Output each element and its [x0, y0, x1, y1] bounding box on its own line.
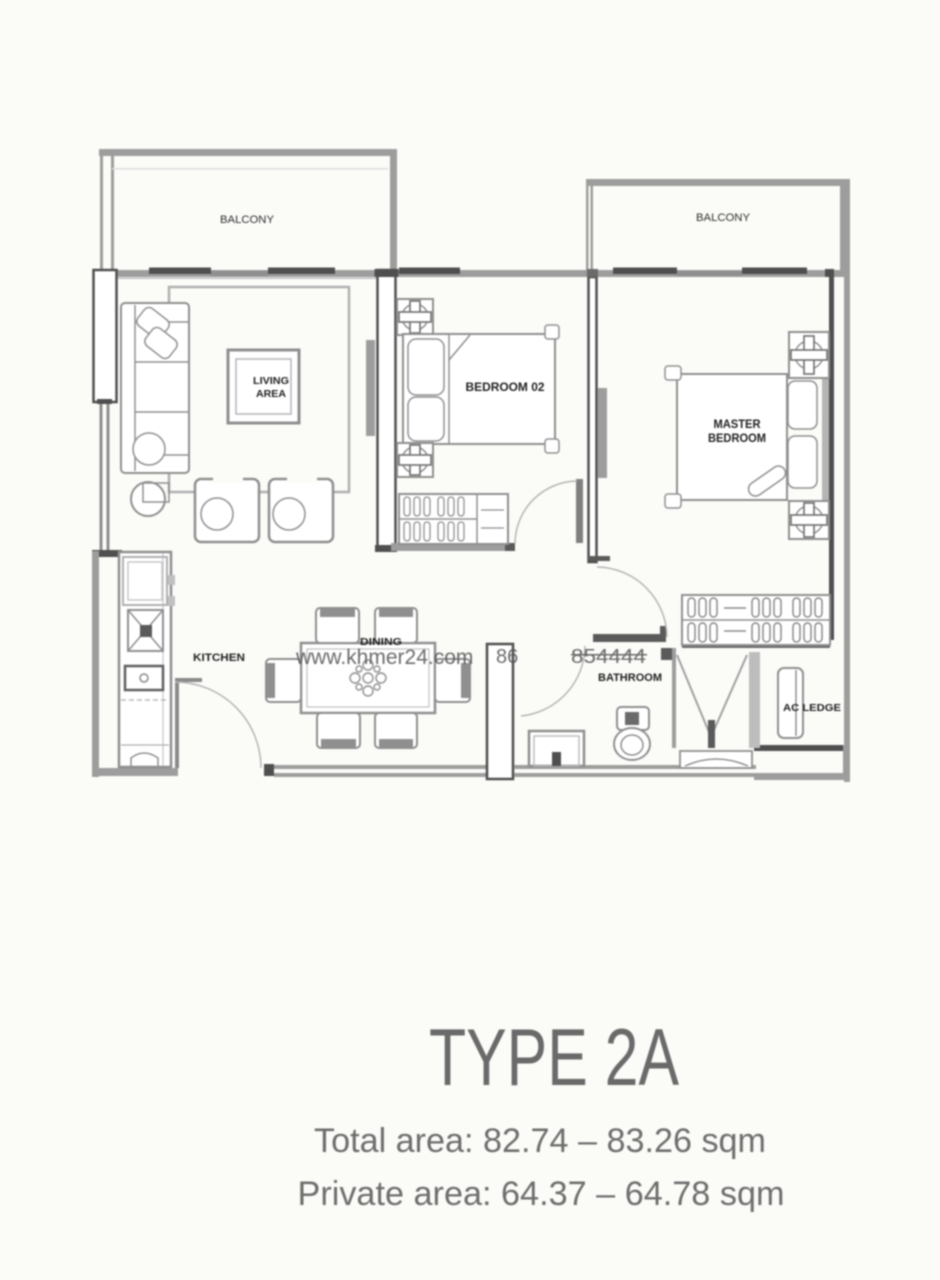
svg-text:MASTER: MASTER — [714, 419, 762, 431]
svg-text:AC LEDGE: AC LEDGE — [783, 702, 841, 714]
svg-text:Total area: 82.74 – 83.26 sqm: Total area: 82.74 – 83.26 sqm — [314, 1122, 766, 1160]
svg-text:AREA: AREA — [256, 388, 286, 400]
svg-text:BALCONY: BALCONY — [696, 212, 751, 224]
svg-text:LIVING: LIVING — [253, 375, 289, 387]
svg-text:BEDROOM: BEDROOM — [708, 433, 766, 445]
svg-text:BEDROOM 02: BEDROOM 02 — [466, 382, 545, 394]
svg-text:Private area: 64.37 – 64.78 sq: Private area: 64.37 – 64.78 sqm — [298, 1175, 785, 1213]
svg-text:BALCONY: BALCONY — [220, 214, 275, 226]
svg-text:854444: 854444 — [571, 646, 646, 668]
svg-text:KITCHEN: KITCHEN — [193, 652, 245, 664]
svg-text:www.khmer24.com: www.khmer24.com — [295, 646, 473, 669]
svg-text:TYPE 2A: TYPE 2A — [429, 1013, 679, 1103]
svg-text:86: 86 — [496, 646, 518, 668]
svg-text:BATHROOM: BATHROOM — [598, 672, 662, 684]
